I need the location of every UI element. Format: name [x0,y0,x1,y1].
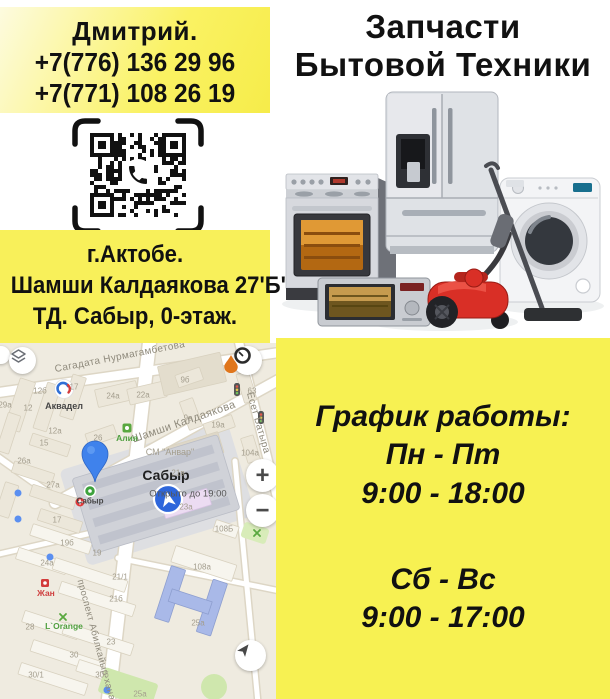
aliya-icon [123,424,132,433]
fridge-graphic [386,92,498,254]
zhan-icon [41,579,49,587]
contact-name: Дмитрий. [0,16,270,47]
address-building: ТД. Сабыр, 0-этаж. [11,301,259,332]
zoom-in-button[interactable]: + [246,459,276,492]
locate-button[interactable] [235,640,266,671]
microwave-graphic [318,278,430,326]
address-city: г.Актобе. [11,239,259,270]
phone-number-1: +7(776) 136 29 96 [8,47,262,78]
schedule-heading: График работы: [276,400,610,434]
phone-number-2: +7(771) 108 26 19 [8,78,262,109]
title-line-1: Запчасти [276,8,610,46]
schedule-days-weekend: Сб - Вс [276,563,610,597]
address-street: Шамши Калдаякова 27'Б'. [11,270,259,301]
title-line-2: Бытовой Техники [276,46,610,84]
schedule-days-weekdays: Пн - Пт [276,438,610,472]
address-block: г.Актобе. Шамши Калдаякова 27'Б'. ТД. Са… [0,230,270,343]
page-title: Запчасти Бытовой Техники [276,8,610,84]
aquadel-logo [55,380,74,399]
layers-button[interactable] [9,347,36,374]
traffic-drop-icon [224,355,238,373]
qr-code [72,118,204,234]
map-canvas[interactable]: Сагадата НурмагамбетоваШамши КалдаяковаЕ… [0,343,276,699]
schedule-hours-weekend: 9:00 - 17:00 [276,601,610,635]
schedule-hours-weekdays: 9:00 - 18:00 [276,477,610,511]
layers-icon [9,347,28,366]
pharmacy-icon [76,498,85,507]
zoom-out-button[interactable]: − [246,494,276,527]
sabyr-entrance-icon [85,486,96,497]
schedule-block: График работы: Пн - Пт 9:00 - 18:00 Сб -… [276,338,610,699]
navigate-arrow-icon [235,640,254,659]
appliances-photo [278,86,610,338]
contact-block: Дмитрий. +7(776) 136 29 96 +7(771) 108 2… [0,7,270,113]
